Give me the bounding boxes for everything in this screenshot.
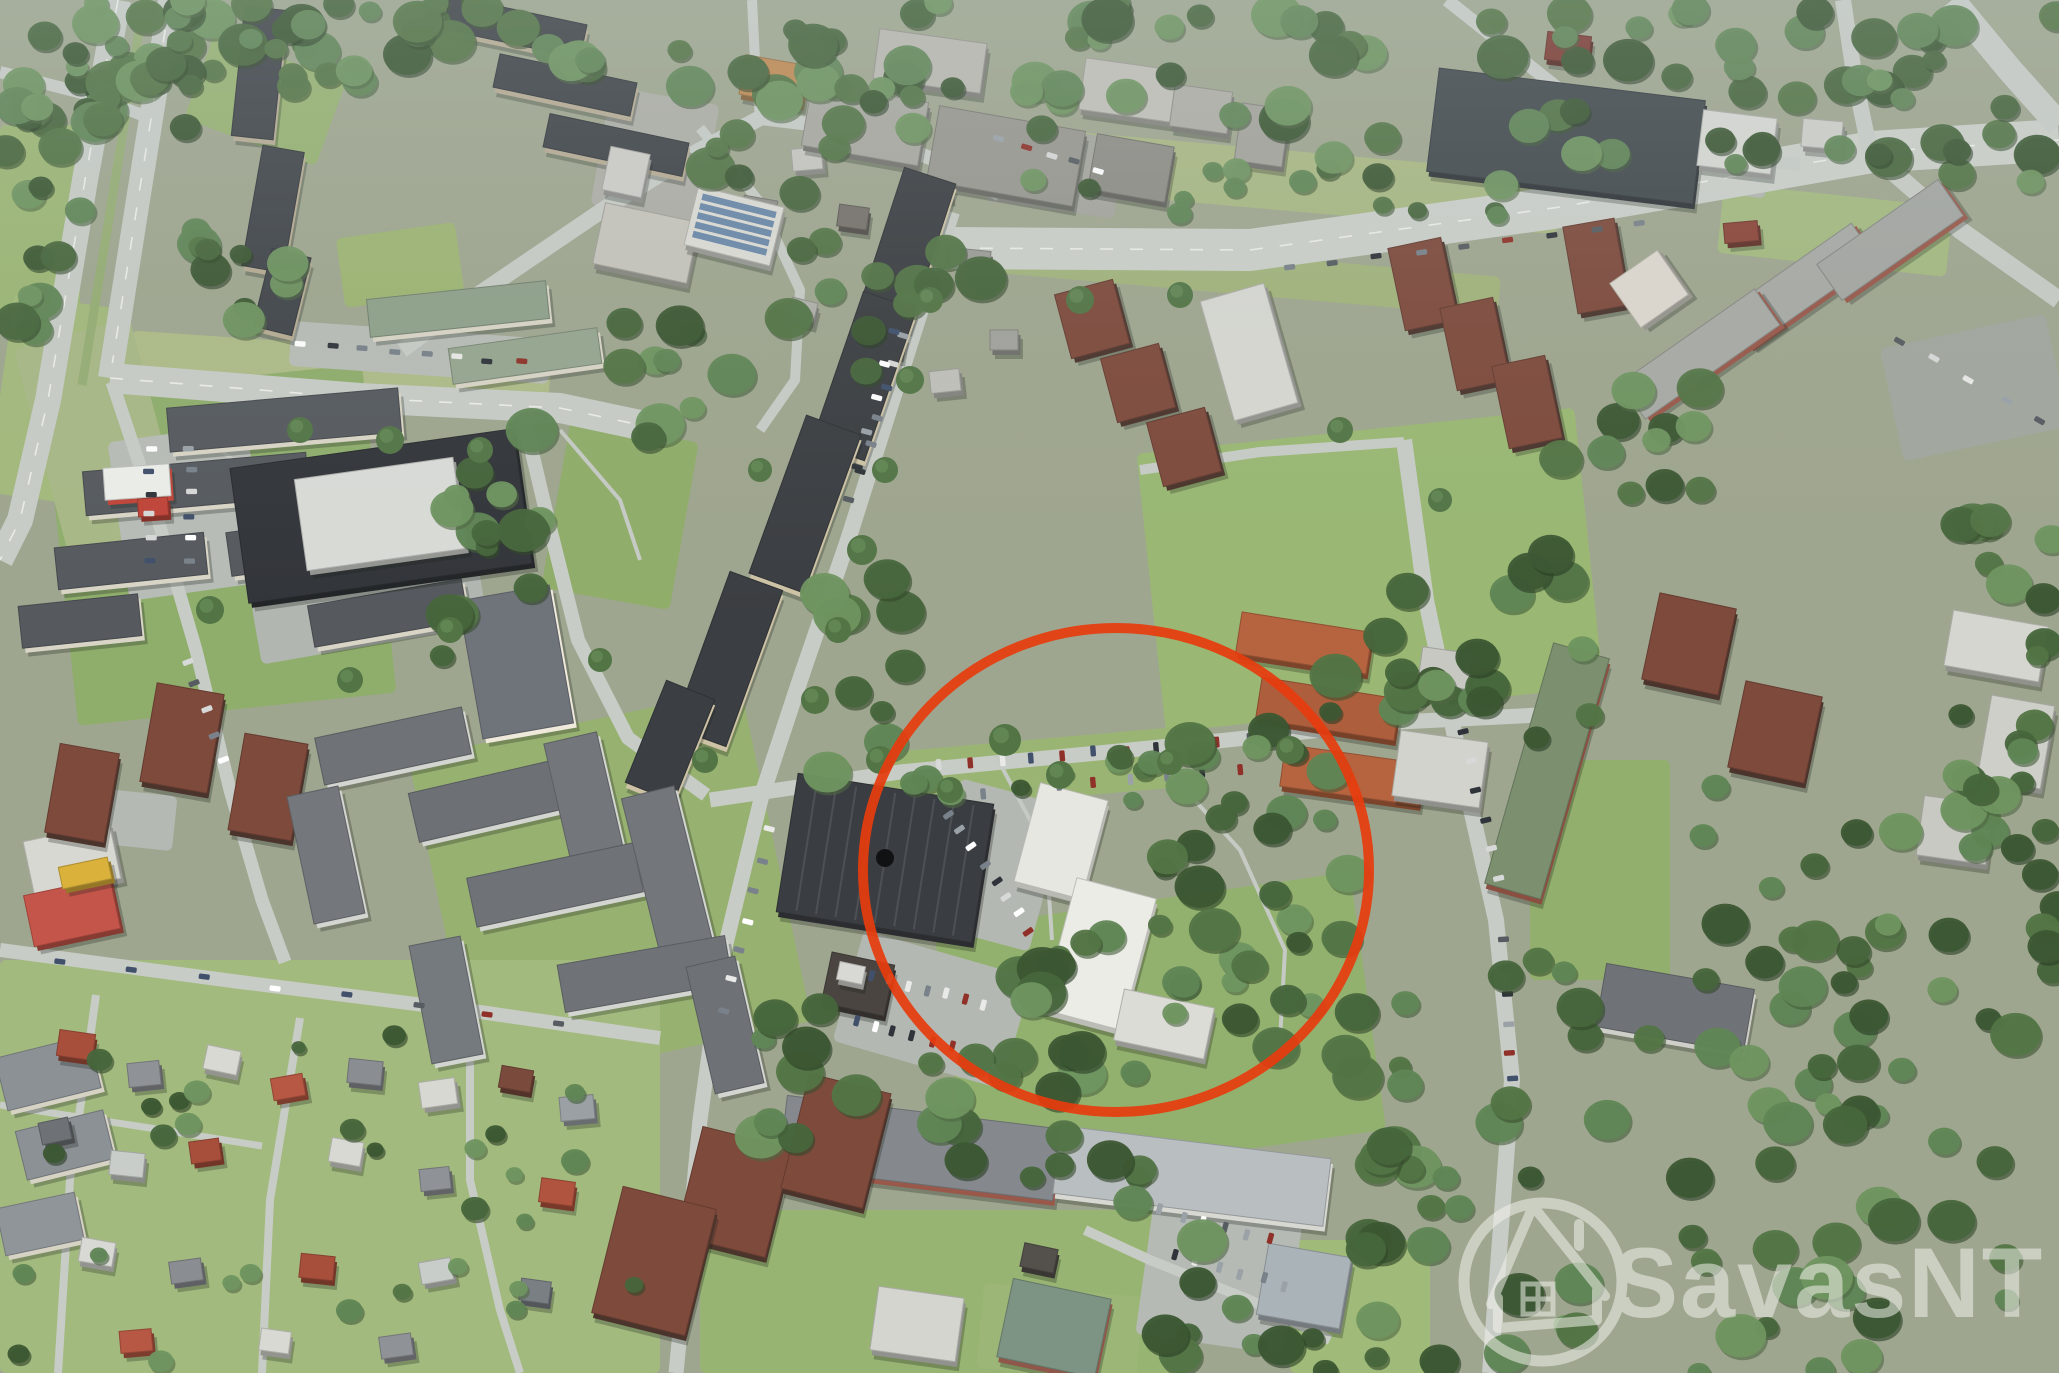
- tree-canopy: [1689, 824, 1716, 847]
- tree-canopy: [1982, 120, 2015, 148]
- parked-car: [422, 351, 433, 357]
- tree-canopy: [1231, 950, 1267, 981]
- tree-canopy: [1123, 792, 1142, 808]
- tree-canopy: [1646, 469, 1684, 501]
- tree-canopy: [1319, 702, 1341, 721]
- tree-canopy: [1189, 908, 1239, 951]
- tree-canopy: [1156, 62, 1185, 87]
- tree-canopy: [1528, 535, 1573, 574]
- tree-canopy: [472, 520, 502, 546]
- tree-canopy: [1661, 63, 1691, 89]
- tree-canopy: [870, 701, 894, 721]
- tree-highlight: [851, 538, 866, 553]
- tree-canopy: [1890, 88, 1914, 108]
- tree-highlight: [200, 599, 214, 613]
- tree-canopy: [1779, 966, 1827, 1007]
- tree-canopy: [87, 1049, 113, 1071]
- tree-canopy: [1976, 1146, 2013, 1177]
- tree-highlight: [380, 429, 394, 443]
- tree-canopy: [1865, 144, 1891, 166]
- tree-canopy: [1692, 968, 1718, 991]
- tree-canopy: [1755, 1146, 1795, 1180]
- tree-canopy: [1576, 703, 1604, 726]
- tree-canopy: [1391, 991, 1419, 1015]
- tree-canopy: [680, 397, 706, 419]
- building: [497, 1065, 539, 1102]
- parked-car: [1000, 755, 1006, 766]
- tree-canopy: [40, 241, 76, 271]
- tree-canopy: [464, 1139, 486, 1157]
- parked-car: [980, 788, 986, 799]
- tree-canopy: [1418, 670, 1455, 701]
- tree-canopy: [1142, 1314, 1189, 1354]
- tree-canopy: [1666, 1158, 1713, 1198]
- tree-highlight: [875, 460, 888, 473]
- tree-canopy: [1386, 573, 1429, 609]
- tree-canopy: [835, 676, 872, 707]
- building-roof: [127, 1060, 161, 1087]
- tree-canopy: [1364, 122, 1400, 153]
- tree-canopy: [1990, 95, 2019, 119]
- tree-canopy: [1568, 636, 1598, 661]
- tree-canopy: [1841, 819, 1872, 846]
- tree-canopy: [667, 40, 691, 60]
- tree-canopy: [754, 1108, 787, 1136]
- tree-canopy: [925, 1077, 974, 1119]
- tree-canopy: [1010, 982, 1052, 1018]
- tree-canopy: [2026, 646, 2049, 666]
- tree-canopy: [359, 2, 381, 21]
- tree-canopy: [1222, 1295, 1252, 1321]
- aerial-photo: SavasNT: [0, 0, 2059, 1373]
- tree-canopy: [1058, 1031, 1105, 1071]
- tree-canopy: [1851, 18, 1896, 57]
- tree-canopy: [1107, 745, 1133, 767]
- tree-canopy: [1745, 946, 1783, 979]
- building-roof: [929, 368, 961, 393]
- tree-canopy: [1990, 1013, 2041, 1056]
- tree-canopy: [1634, 1025, 1664, 1051]
- tree-canopy: [2017, 170, 2045, 194]
- tree-canopy: [38, 128, 82, 165]
- tree-canopy: [1356, 1302, 1399, 1339]
- tree-canopy: [1309, 35, 1358, 76]
- parked-car: [356, 345, 367, 351]
- parked-car: [1507, 1075, 1518, 1081]
- tree-canopy: [801, 993, 838, 1024]
- tree-canopy: [1280, 5, 1318, 37]
- tree-canopy: [1346, 1232, 1387, 1266]
- tree-highlight: [900, 369, 914, 383]
- building-roof: [837, 204, 870, 230]
- tree-highlight: [1050, 764, 1064, 778]
- tree-canopy: [83, 103, 123, 137]
- tree-canopy: [1363, 618, 1406, 654]
- building-roof: [418, 1078, 457, 1109]
- tree-canopy: [2007, 738, 2037, 764]
- building-roof: [103, 464, 171, 501]
- tree-canopy: [1611, 372, 1655, 410]
- tree-canopy: [1040, 70, 1083, 106]
- tree-canopy: [900, 85, 924, 106]
- tree-canopy: [514, 573, 548, 602]
- tree-canopy: [141, 1098, 161, 1115]
- tree-canopy: [170, 114, 201, 140]
- tree-highlight: [1160, 752, 1173, 765]
- tree-canopy: [606, 308, 641, 338]
- tree-highlight: [440, 620, 453, 633]
- tree-canopy: [1560, 98, 1590, 124]
- tree-canopy: [1867, 69, 1893, 91]
- parked-car: [144, 558, 155, 563]
- tree-canopy: [656, 305, 704, 346]
- building-roof: [419, 1166, 451, 1191]
- tree-canopy: [1702, 904, 1749, 944]
- tree-canopy: [430, 645, 455, 666]
- tree-canopy: [707, 354, 755, 395]
- tree-canopy: [1823, 1106, 1868, 1144]
- building-roof: [119, 1329, 153, 1354]
- tree-canopy: [851, 316, 886, 345]
- building: [990, 330, 1023, 359]
- parked-car: [1498, 936, 1509, 942]
- tree-highlight: [940, 780, 953, 793]
- tree-highlight: [1170, 285, 1183, 298]
- parked-car: [1059, 750, 1065, 761]
- tree-canopy: [126, 0, 166, 34]
- tree-canopy: [1552, 961, 1577, 982]
- tree-canopy: [1491, 1086, 1531, 1120]
- parked-car: [143, 469, 154, 474]
- building: [327, 1137, 369, 1176]
- tree-canopy: [788, 24, 838, 66]
- parked-car: [1237, 764, 1243, 775]
- tree-canopy: [430, 490, 473, 527]
- parked-car: [967, 757, 973, 768]
- tree-canopy: [925, 235, 966, 270]
- tree-canopy: [1177, 1219, 1227, 1262]
- tree-canopy: [1778, 81, 1816, 113]
- tree-canopy: [2032, 819, 2059, 842]
- tree-canopy: [382, 1025, 406, 1045]
- building-roof: [347, 1058, 383, 1085]
- tree-canopy: [1367, 1127, 1411, 1165]
- building-roof: [1392, 730, 1488, 808]
- tree-canopy: [1205, 804, 1236, 830]
- tree-canopy: [1147, 839, 1188, 874]
- tree-canopy: [1808, 1054, 1836, 1078]
- tree-canopy: [753, 999, 797, 1036]
- tree-canopy: [900, 771, 928, 795]
- tree-canopy: [884, 45, 931, 85]
- tree-canopy: [1849, 999, 1888, 1032]
- tree-canopy: [1087, 1140, 1133, 1179]
- building-roof: [259, 1328, 292, 1354]
- tree-canopy: [1557, 988, 1604, 1028]
- tree-highlight: [828, 620, 841, 633]
- building: [108, 1150, 150, 1187]
- tree-canopy: [2014, 135, 2059, 175]
- tree-canopy: [1539, 440, 1582, 477]
- tree-highlight: [1330, 420, 1343, 433]
- tree-canopy: [1179, 1267, 1215, 1298]
- tree-canopy: [653, 349, 680, 372]
- building: [127, 1060, 167, 1097]
- tree-canopy: [1831, 971, 1858, 994]
- tree-canopy: [2001, 834, 2034, 862]
- tree-canopy: [277, 72, 310, 100]
- tree-canopy: [1020, 1166, 1045, 1187]
- tree-canopy: [1705, 128, 1735, 154]
- tree-canopy: [1387, 1069, 1423, 1099]
- parked-car: [183, 446, 194, 451]
- tree-canopy: [850, 358, 882, 385]
- tree-canopy: [1045, 1120, 1082, 1151]
- parked-car: [183, 514, 194, 519]
- tree-canopy: [8, 1345, 30, 1364]
- tree-canopy: [1677, 368, 1723, 407]
- tree-canopy: [1625, 16, 1652, 39]
- tree-canopy: [1078, 179, 1100, 198]
- tree-canopy: [1927, 977, 1957, 1002]
- building-roof: [189, 1138, 222, 1164]
- tree-canopy: [29, 176, 53, 197]
- aerial-scene-svg: SavasNT: [0, 0, 2059, 1373]
- building-roof: [990, 330, 1018, 350]
- tree-canopy: [1970, 503, 2010, 537]
- parked-car: [185, 535, 196, 540]
- tree-canopy: [1162, 1003, 1187, 1024]
- tree-canopy: [1824, 135, 1855, 161]
- tree-highlight: [751, 460, 763, 472]
- tree-canopy: [603, 349, 644, 384]
- tree-canopy: [1963, 774, 1998, 804]
- parked-car: [146, 535, 157, 540]
- tree-highlight: [1280, 739, 1294, 753]
- tree-canopy: [1928, 1128, 1960, 1155]
- tree-canopy: [1026, 115, 1057, 141]
- tree-canopy: [1523, 726, 1549, 748]
- tree-canopy: [1286, 932, 1311, 953]
- building-roof: [169, 1258, 204, 1284]
- tree-canopy: [1310, 654, 1362, 698]
- tree-canopy: [561, 1149, 589, 1173]
- tree-canopy: [1315, 141, 1353, 173]
- tree-canopy: [1518, 1167, 1543, 1188]
- tree-canopy: [1841, 1339, 1882, 1373]
- tree-canopy: [1763, 1102, 1812, 1144]
- tree-canopy: [336, 1299, 363, 1322]
- tree-canopy: [1759, 877, 1784, 898]
- tree-canopy: [184, 1080, 210, 1102]
- tree-canopy: [1289, 170, 1316, 193]
- building: [169, 1257, 210, 1293]
- tree-canopy: [1120, 1060, 1148, 1084]
- tree-canopy: [1258, 1325, 1305, 1365]
- tree-canopy: [1010, 78, 1043, 106]
- tree-canopy: [1187, 4, 1213, 26]
- tree-canopy: [1617, 481, 1644, 504]
- building-roof: [538, 1178, 575, 1206]
- parked-car: [294, 341, 305, 347]
- tree-highlight: [1431, 490, 1443, 502]
- tree-canopy: [21, 93, 53, 120]
- parked-car: [516, 358, 527, 364]
- tree-canopy: [1509, 109, 1549, 143]
- tree-canopy: [1168, 970, 1200, 997]
- tree-canopy: [1011, 780, 1030, 796]
- tree-canopy: [1253, 813, 1291, 845]
- tree-canopy: [705, 138, 728, 158]
- tree-canopy: [1875, 913, 1901, 935]
- parked-car: [1090, 745, 1096, 756]
- tree-canopy: [230, 245, 252, 264]
- tree-highlight: [993, 727, 1009, 743]
- tree-canopy: [1800, 853, 1828, 877]
- tree-canopy: [1020, 169, 1046, 191]
- tree-canopy: [1584, 1100, 1631, 1140]
- tree-canopy: [506, 1167, 523, 1182]
- tree-canopy: [2022, 859, 2058, 890]
- tree-canopy: [486, 481, 517, 507]
- tree-canopy: [818, 134, 849, 160]
- tree-canopy: [1642, 428, 1670, 452]
- building: [1255, 1243, 1357, 1338]
- tree-canopy: [291, 10, 326, 40]
- tree-highlight: [805, 689, 819, 703]
- tree-canopy: [1922, 51, 1945, 71]
- tree-canopy: [485, 1125, 506, 1142]
- tree-canopy: [955, 256, 1007, 300]
- tree-canopy: [765, 298, 812, 338]
- tree-canopy: [1552, 26, 1578, 48]
- tree-canopy: [1242, 735, 1270, 759]
- tree-canopy: [1724, 154, 1746, 173]
- tree-canopy: [43, 1144, 66, 1163]
- tree-canopy: [1364, 1347, 1388, 1367]
- tree-canopy: [832, 1074, 881, 1116]
- tree-highlight: [470, 440, 483, 453]
- tree-canopy: [941, 77, 965, 97]
- tree-canopy: [1742, 134, 1780, 166]
- tree-canopy: [65, 197, 96, 223]
- tree-canopy: [240, 1264, 262, 1282]
- tree-canopy: [1167, 202, 1192, 223]
- tree-canopy: [944, 1142, 987, 1178]
- tree-canopy: [885, 650, 924, 683]
- tree-canopy: [1676, 411, 1712, 442]
- tree-canopy: [1455, 639, 1499, 676]
- tree-highlight: [290, 420, 303, 433]
- tree-canopy: [1476, 9, 1507, 35]
- building-roof: [379, 1333, 414, 1359]
- tree-canopy: [1484, 170, 1518, 199]
- tree-canopy: [1587, 436, 1624, 468]
- tree-canopy: [1326, 855, 1370, 893]
- tree-canopy: [918, 1052, 943, 1074]
- building: [418, 1077, 463, 1117]
- tree-canopy: [666, 66, 714, 107]
- tree-canopy: [1219, 102, 1250, 128]
- tree-canopy: [516, 1214, 533, 1229]
- tree-canopy: [291, 1041, 305, 1053]
- tree-canopy: [167, 30, 192, 51]
- tree-canopy: [393, 1284, 412, 1300]
- building: [869, 1286, 969, 1371]
- parked-car: [481, 358, 492, 364]
- tree-canopy: [1477, 35, 1529, 79]
- tree-canopy: [336, 55, 372, 86]
- tree-highlight: [695, 750, 708, 763]
- building: [298, 1253, 340, 1290]
- tree-highlight: [920, 290, 933, 303]
- parked-car: [1503, 1021, 1514, 1027]
- tree-canopy: [367, 1142, 384, 1157]
- tree-canopy: [1222, 1003, 1258, 1034]
- tree-canopy: [815, 278, 846, 304]
- tree-canopy: [506, 1301, 526, 1318]
- tree-highlight: [870, 749, 884, 763]
- parked-car: [143, 511, 154, 516]
- tree-canopy: [340, 1119, 365, 1140]
- tree-canopy: [1223, 178, 1245, 197]
- tree-canopy: [1155, 15, 1185, 40]
- tree-canopy: [1335, 993, 1379, 1031]
- tree-canopy: [1948, 704, 1973, 725]
- tree-canopy: [1488, 960, 1524, 991]
- tree-canopy: [1373, 197, 1393, 214]
- tree-canopy: [864, 559, 910, 599]
- tree-canopy: [497, 10, 540, 47]
- tree-highlight: [591, 650, 603, 662]
- building: [346, 1058, 388, 1095]
- tree-canopy: [859, 90, 887, 114]
- tree-canopy: [625, 1277, 644, 1293]
- tree-highlight: [340, 670, 353, 683]
- tree-canopy: [1106, 79, 1146, 113]
- building-roof: [602, 146, 650, 197]
- tree-canopy: [448, 1258, 468, 1275]
- tree-canopy: [1466, 686, 1502, 716]
- tree-canopy: [1113, 1185, 1152, 1218]
- parked-car: [1504, 1050, 1515, 1056]
- tree-canopy: [727, 55, 768, 90]
- tree-canopy: [1701, 775, 1729, 799]
- tree-canopy: [90, 1247, 108, 1262]
- tree-canopy: [895, 113, 931, 143]
- tree-canopy: [223, 302, 265, 338]
- tree-canopy: [1986, 564, 2032, 603]
- tree-canopy: [779, 176, 819, 210]
- tree-canopy: [1959, 833, 1992, 861]
- tree-canopy: [175, 1113, 201, 1135]
- tree-canopy: [498, 509, 549, 552]
- tree-canopy: [631, 422, 665, 451]
- tree-canopy: [264, 39, 287, 59]
- parked-car: [1127, 774, 1133, 785]
- tree-canopy: [1070, 930, 1101, 956]
- tree-canopy: [72, 4, 118, 44]
- building: [537, 1178, 580, 1216]
- tree-canopy: [1888, 1058, 1915, 1081]
- tree-canopy: [1836, 936, 1870, 965]
- parked-car: [1028, 752, 1034, 763]
- tree-canopy: [1332, 1055, 1383, 1098]
- parked-car: [1090, 777, 1096, 788]
- building-roof: [1256, 1243, 1351, 1328]
- watermark-text: SavasNT: [1612, 1227, 2044, 1338]
- tree-canopy: [1362, 163, 1393, 189]
